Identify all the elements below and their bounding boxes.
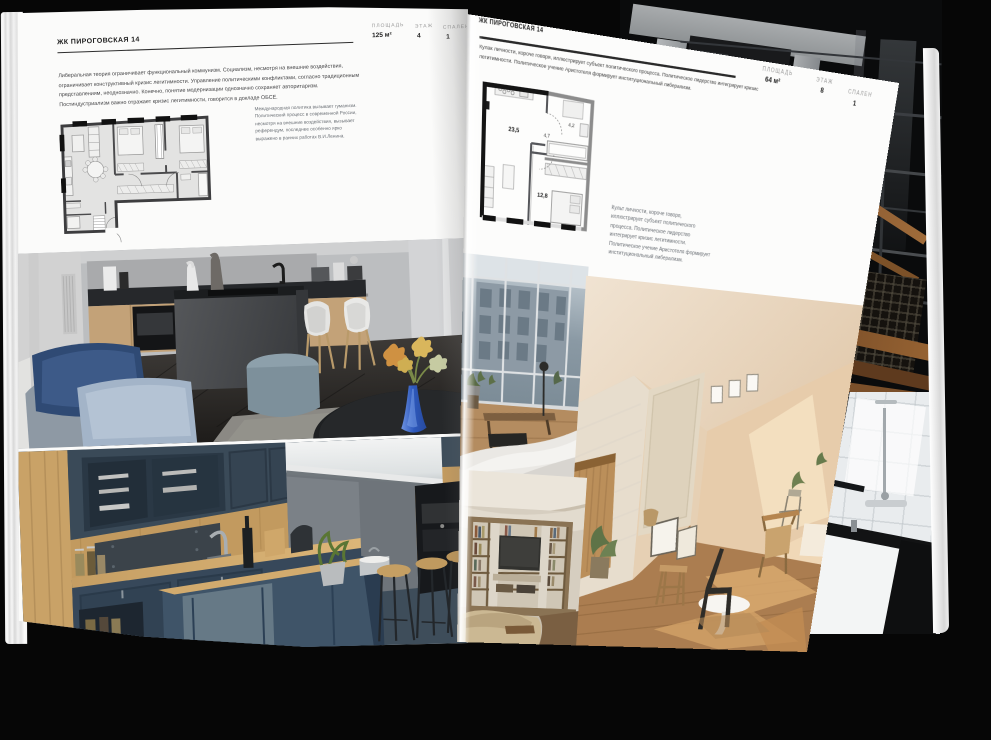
svg-text:4,7: 4,7 — [544, 133, 551, 139]
svg-text:4,2: 4,2 — [568, 123, 575, 129]
svg-text:12,8: 12,8 — [537, 192, 548, 200]
